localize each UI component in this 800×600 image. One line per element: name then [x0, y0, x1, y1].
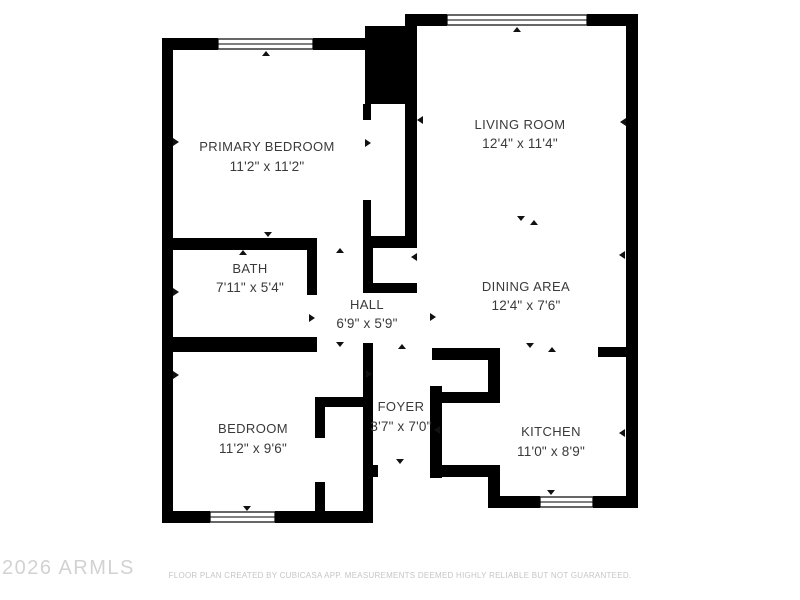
- window-symbol-primary-bedroom: [218, 39, 313, 49]
- wall-segment: [626, 14, 638, 508]
- wall-segment: [430, 386, 442, 478]
- room-label-primary-bedroom: PRIMARY BEDROOM: [199, 139, 335, 154]
- room-label-bath: BATH: [232, 261, 267, 276]
- wall-segment: [438, 392, 500, 403]
- wall-segment: [363, 104, 371, 120]
- door-direction-tick: [239, 250, 247, 255]
- room-dims-kitchen: 11'0" x 8'9": [517, 444, 585, 459]
- floor-plan-canvas: PRIMARY BEDROOM 11'2" x 11'2" LIVING ROO…: [0, 0, 800, 600]
- room-label-living-room: LIVING ROOM: [474, 117, 565, 132]
- door-direction-tick: [548, 347, 556, 352]
- room-dims-bedroom: 11'2" x 9'6": [219, 441, 287, 456]
- room-dims-foyer: 3'7" x 7'0": [370, 419, 431, 434]
- wall-segment: [315, 397, 325, 438]
- wall-segment: [363, 200, 371, 236]
- floor-plan: PRIMARY BEDROOM 11'2" x 11'2" LIVING ROO…: [0, 0, 800, 600]
- room-label-dining-area: DINING AREA: [482, 279, 570, 294]
- wall-segment: [162, 337, 317, 352]
- door-direction-tick: [530, 220, 538, 225]
- door-direction-tick: [517, 216, 525, 221]
- room-label-foyer: FOYER: [378, 399, 425, 414]
- window-symbol-living-room: [447, 15, 587, 25]
- door-direction-tick: [243, 506, 251, 511]
- door-direction-tick: [526, 343, 534, 348]
- wall-segment: [162, 238, 317, 250]
- door-direction-tick: [262, 51, 270, 56]
- door-direction-tick: [173, 138, 179, 146]
- room-dims-bath: 7'11" x 5'4": [216, 280, 284, 295]
- door-direction-tick: [173, 371, 179, 379]
- wall-segment: [162, 511, 210, 523]
- door-direction-tick: [619, 251, 625, 259]
- door-direction-tick: [417, 116, 423, 124]
- door-direction-tick: [365, 139, 371, 147]
- room-dims-primary-bedroom: 11'2" x 11'2": [230, 159, 305, 174]
- wall-segment: [593, 496, 638, 508]
- wall-segment: [162, 38, 218, 50]
- door-direction-tick: [619, 429, 625, 437]
- wall-segment: [313, 38, 370, 50]
- wall-segment: [405, 14, 417, 248]
- room-label-hall: HALL: [350, 297, 384, 312]
- door-direction-tick: [396, 459, 404, 464]
- wall-segment: [315, 482, 325, 523]
- wall-segment: [598, 347, 638, 357]
- door-direction-tick: [336, 342, 344, 347]
- room-label-bedroom: BEDROOM: [218, 421, 288, 436]
- door-direction-tick: [430, 313, 436, 321]
- room-dims-dining-area: 12'4" x 7'6": [492, 298, 561, 313]
- door-direction-tick: [620, 118, 626, 126]
- door-direction-tick: [264, 232, 272, 237]
- door-direction-tick: [513, 27, 521, 32]
- room-dims-living-room: 12'4" x 11'4": [482, 136, 558, 151]
- window-symbol-bedroom: [210, 512, 275, 522]
- window-symbol-kitchen: [540, 497, 593, 507]
- door-direction-tick: [398, 344, 406, 349]
- door-direction-tick: [547, 490, 555, 495]
- door-direction-tick: [336, 248, 344, 253]
- door-direction-tick: [411, 253, 417, 261]
- room-dims-hall: 6'9" x 5'9": [336, 316, 397, 331]
- door-direction-tick: [173, 288, 179, 296]
- room-label-kitchen: KITCHEN: [521, 424, 581, 439]
- wall-segment: [488, 477, 500, 508]
- door-direction-tick: [309, 314, 315, 322]
- wall-segment: [363, 283, 417, 293]
- wall-segment: [307, 238, 317, 295]
- wall-segment: [162, 38, 173, 523]
- disclaimer: FLOOR PLAN CREATED BY CUBICASA APP. MEAS…: [0, 571, 800, 580]
